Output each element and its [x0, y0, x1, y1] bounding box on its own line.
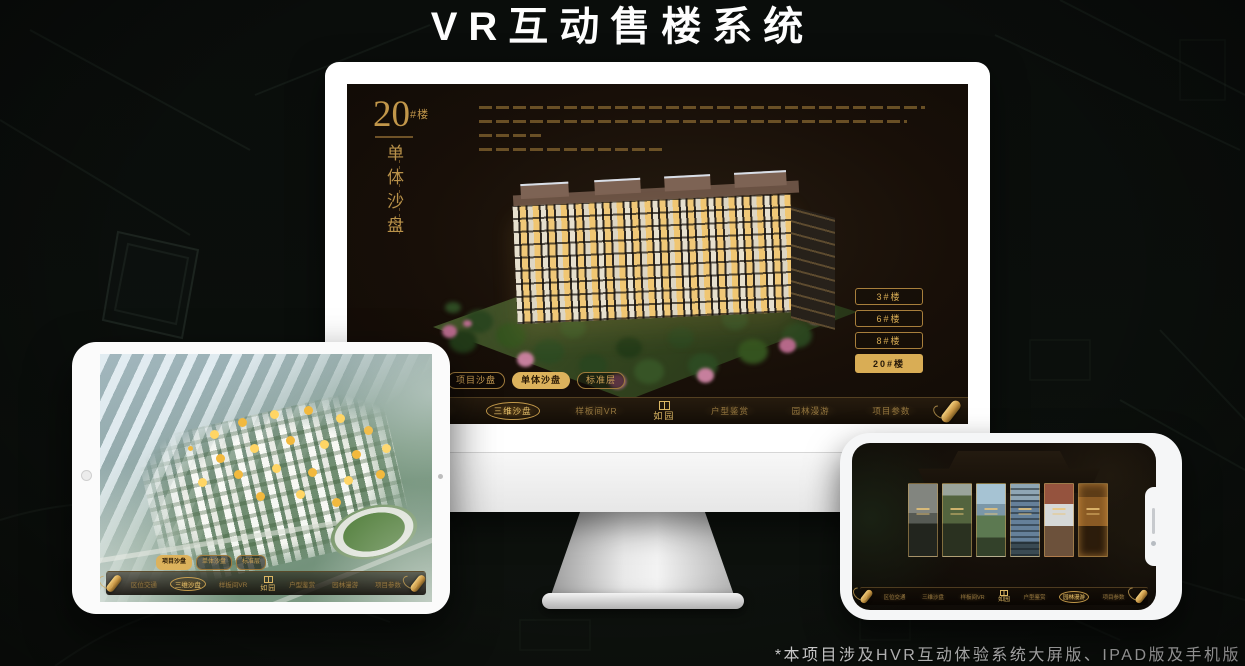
phone-device: 区位交通 三维沙盘 样板间VR 如园 户型鉴赏 园林漫游 项目参数 [840, 433, 1182, 620]
nav-item-3d-sandbox[interactable]: 三维沙盘 [170, 577, 206, 591]
scene-card[interactable] [942, 483, 972, 557]
seal-icon [1000, 590, 1008, 596]
camera-icon [1151, 541, 1156, 546]
roof-cap [664, 174, 711, 191]
scene-card[interactable] [1010, 483, 1040, 557]
brand-logo: 如园 [260, 576, 276, 592]
phone-navbar: 区位交通 三维沙盘 样板间VR 如园 户型鉴赏 园林漫游 项目参数 [860, 587, 1148, 605]
nav-item-project-info[interactable]: 项目参数 [865, 403, 917, 419]
scroll-icon[interactable] [939, 398, 962, 424]
scene-card[interactable] [908, 483, 938, 557]
subtab-single-sandbox[interactable]: 单体沙盘 [196, 555, 232, 570]
seal-icon [659, 401, 670, 410]
building-facade [513, 194, 796, 324]
building-markers [188, 446, 193, 451]
nav-item-floorplans[interactable]: 户型鉴赏 [704, 403, 756, 419]
building-button-3[interactable]: 3#楼 [855, 288, 923, 305]
paragraph-line [479, 120, 907, 123]
phone-screen: 区位交通 三维沙盘 样板间VR 如园 户型鉴赏 园林漫游 项目参数 [852, 443, 1156, 610]
model-trees [445, 302, 461, 313]
phone-notch [1145, 487, 1161, 566]
nav-item-project-info[interactable]: 项目参数 [1100, 592, 1128, 602]
nav-item-location[interactable]: 区位交通 [880, 592, 908, 602]
speaker-icon [1152, 508, 1155, 534]
building-selector: 3#楼 6#楼 8#楼 20#楼 [855, 288, 923, 373]
nav-item-project-info[interactable]: 项目参数 [371, 578, 405, 590]
nav-item-garden-tour[interactable]: 园林漫游 [1059, 591, 1089, 603]
building-model [509, 160, 815, 352]
brand-logo-text: 如园 [998, 597, 1010, 603]
tablet-navbar: 区位交通 三维沙盘 样板间VR 如园 户型鉴赏 园林漫游 项目参数 [106, 571, 426, 595]
scroll-icon[interactable] [1134, 588, 1149, 604]
brand-logo-text: 如园 [653, 412, 675, 421]
nav-item-model-room-vr[interactable]: 样板间VR [215, 578, 252, 590]
scroll-icon[interactable] [859, 588, 874, 604]
headline-dotted-line [399, 148, 400, 234]
nav-item-floorplans[interactable]: 户型鉴赏 [1021, 592, 1049, 602]
scene-gallery [908, 483, 1108, 557]
subtab-project-sandbox[interactable]: 项目沙盘 [156, 555, 192, 570]
page-title: VR互动售楼系统 [0, 0, 1245, 54]
nav-item-model-room-vr[interactable]: 样板间VR [568, 403, 624, 419]
subtab-standard-floor[interactable]: 标准层 [236, 555, 266, 570]
subtab-project-sandbox[interactable]: 项目沙盘 [447, 372, 505, 389]
tablet-screen: 项目沙盘 单体沙盘 标准层 区位交通 三维沙盘 样板间VR 如园 户型鉴赏 园林… [100, 354, 432, 602]
subtab-standard-floor[interactable]: 标准层 [577, 372, 625, 389]
paragraph-line [479, 134, 541, 137]
scene-card[interactable] [1044, 483, 1074, 557]
building-button-8[interactable]: 8#楼 [855, 332, 923, 349]
tablet-subtabs: 项目沙盘 单体沙盘 标准层 [156, 555, 266, 570]
tablet-camera-icon [81, 470, 92, 481]
roof-cap [734, 170, 787, 188]
building-side [791, 206, 835, 330]
nav-item-floorplans[interactable]: 户型鉴赏 [285, 578, 319, 590]
building-number-suffix: #楼 [410, 109, 429, 121]
nav-item-garden-tour[interactable]: 园林漫游 [785, 403, 837, 419]
tablet-home-button[interactable] [438, 474, 443, 479]
scene-card[interactable] [1078, 483, 1108, 557]
tablet-device: 项目沙盘 单体沙盘 标准层 区位交通 三维沙盘 样板间VR 如园 户型鉴赏 园林… [72, 342, 450, 614]
scroll-icon[interactable] [409, 574, 427, 594]
building-number: 20 [373, 96, 410, 134]
brand-logo: 如园 [653, 401, 675, 421]
footnote: *本项目涉及HVR互动体验系统大屏版、IPAD版及手机版 [775, 641, 1241, 665]
model-blossom-trees [463, 320, 472, 327]
poster: VR互动售楼系统 20#楼 单体沙盘 [0, 0, 1245, 666]
headline-rule [375, 136, 413, 138]
subtab-single-sandbox[interactable]: 单体沙盘 [512, 372, 570, 389]
monitor-subtabs: 项目沙盘 单体沙盘 标准层 [447, 372, 625, 389]
monitor-stand [550, 508, 735, 598]
roof-cap [520, 182, 569, 199]
nav-item-location[interactable]: 区位交通 [127, 578, 161, 590]
paragraph-line [479, 106, 925, 109]
nav-item-garden-tour[interactable]: 园林漫游 [328, 578, 362, 590]
paragraph-line [479, 148, 666, 151]
scroll-icon[interactable] [105, 574, 123, 594]
scene-card[interactable] [976, 483, 1006, 557]
roof-cap [594, 178, 641, 195]
nav-item-3d-sandbox[interactable]: 三维沙盘 [919, 592, 947, 602]
brand-logo-text: 如园 [260, 585, 276, 592]
nav-item-3d-sandbox[interactable]: 三维沙盘 [486, 402, 540, 420]
headline-vertical: 单体沙盘 [381, 144, 406, 256]
brand-logo: 如园 [998, 590, 1010, 603]
building-button-20[interactable]: 20#楼 [855, 354, 923, 373]
building-button-6[interactable]: 6#楼 [855, 310, 923, 327]
nav-item-model-room-vr[interactable]: 样板间VR [957, 592, 987, 602]
monitor-base [542, 593, 744, 609]
seal-icon [264, 576, 273, 583]
